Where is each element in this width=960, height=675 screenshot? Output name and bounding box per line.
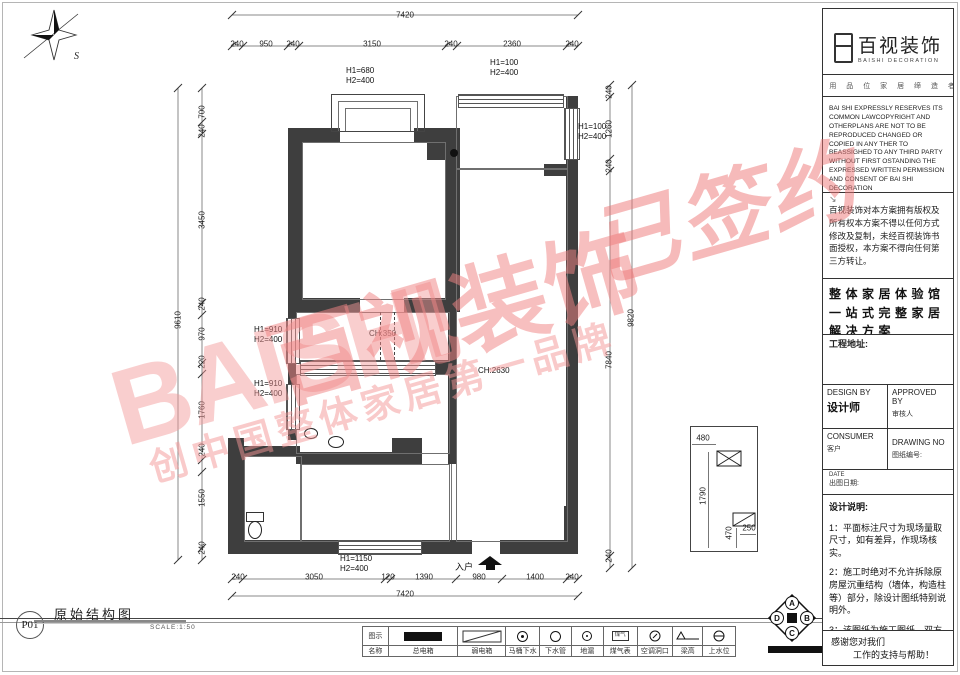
dim-label: 1400 <box>526 573 544 582</box>
design-by-en: DESIGN BY <box>827 388 883 397</box>
dim-label: 240 <box>198 541 207 554</box>
dim-label: 240 <box>605 85 614 98</box>
drawing-no-cn: 图纸编号: <box>892 450 949 460</box>
legend-label: 弱电箱 <box>458 646 505 656</box>
legend-label: 上水位 <box>703 646 735 656</box>
drawing-no-en: DRAWING NO <box>892 438 949 447</box>
wall-segment <box>228 438 244 554</box>
legend-header-bottom: 名称 <box>363 646 388 656</box>
north-compass-icon: S <box>14 6 86 66</box>
window-height-label: H1=100 H2=400 <box>490 58 518 77</box>
abcd-diamond-logo: A B C D <box>766 592 818 644</box>
diamond-letter-c: C <box>789 629 795 638</box>
compass-south-label: S <box>74 51 79 62</box>
detail-dim-line <box>736 528 737 548</box>
legend-symbol-ac-hole-icon <box>649 630 661 642</box>
design-note: 3：该图纸为施工图纸，双方（设计和甲方）签字认可后，方可作为施工依据。 <box>829 624 947 631</box>
legend-header-cell: 图示 名称 <box>363 627 389 656</box>
dim-label: 3150 <box>363 40 381 49</box>
design-note: 1：平面标注尺寸为现场量取尺寸，如有差异，作现场核实。 <box>829 522 947 560</box>
legend-symbol-gas-meter-icon: 煤气 <box>612 631 629 641</box>
window-height-label: H1=100 H2=400 <box>578 122 606 141</box>
arrow-icon: ↘ <box>829 195 947 204</box>
dim-label: 240 <box>231 573 244 582</box>
title-underline <box>34 620 186 622</box>
window-mid-band <box>300 360 436 376</box>
legend-item: 总电箱 <box>389 627 459 656</box>
baishi-logo-icon <box>834 33 853 63</box>
dim-label: 970 <box>198 327 207 340</box>
date-cn: 出图日期: <box>829 478 947 488</box>
window-balcony-top <box>458 94 564 108</box>
floor-drain <box>304 428 318 439</box>
window-left-lower <box>286 384 300 430</box>
legend-label: 空调洞口 <box>638 646 673 656</box>
panel-top-spacer <box>823 9 953 21</box>
dim-label: 1760 <box>198 401 207 419</box>
fold-mark-bar <box>768 646 826 653</box>
legend-label: 马桶下水 <box>506 646 539 656</box>
project-address-label: 工程地址: <box>823 335 953 385</box>
room-outline-bedroom <box>302 142 446 300</box>
legend-item: 上水位 <box>703 627 735 656</box>
detail-dim-label: 480 <box>696 434 709 443</box>
detail-dim-line <box>740 534 756 535</box>
dim-label: 240 <box>198 443 207 456</box>
legend-label: 总电箱 <box>389 646 458 656</box>
copyright-english: BAI SHI EXPRESSLY RESERVES ITS COMMON LA… <box>823 97 953 193</box>
dim-label: 240 <box>230 40 243 49</box>
logo-name-en: BAISHI DECORATION <box>858 58 942 64</box>
bay-window-inner <box>345 108 411 131</box>
dim-label: 9820 <box>627 309 636 327</box>
legend-item: 弱电箱 <box>458 627 506 656</box>
floor-drain <box>328 436 344 448</box>
dim-label: 220 <box>198 355 207 368</box>
dim-label: 7840 <box>605 351 614 369</box>
legend-label: 下水管 <box>540 646 571 656</box>
dim-label: 1550 <box>198 489 207 507</box>
design-by-cn: 设计师 <box>827 399 883 415</box>
wall-line <box>451 464 452 540</box>
legend-item: 梁高 <box>673 627 703 656</box>
drawing-no-cell: DRAWING NO 图纸编号: <box>888 429 953 469</box>
dim-label: 120 <box>381 573 394 582</box>
diamond-letter-d: D <box>774 614 780 623</box>
detail-dim-label: 1790 <box>699 487 708 505</box>
window-bottom <box>338 540 422 555</box>
wall-segment <box>244 446 300 456</box>
legend-table: 图示 名称 总电箱 弱电箱 马桶下水 下水管 地漏 煤气 煤气表 空 <box>362 626 736 657</box>
detail-dim-line <box>708 452 709 548</box>
date-cell: DATE 出图日期: <box>823 469 953 495</box>
thanks-line2: 工作的支持与帮助！ <box>831 648 945 661</box>
room-outline-living <box>456 168 568 542</box>
sheet-code-badge: P01 <box>16 611 44 639</box>
thanks-note: 感谢您对我们 工作的支持与帮助！ <box>823 631 953 665</box>
company-slogan: · 用 品 位 家 居 缔 造 者 <box>823 75 953 97</box>
diamond-letter-a: A <box>789 599 795 608</box>
ceiling-height-label: CH:2630 <box>478 366 510 376</box>
approval-grid: DESIGN BY 设计师 APPROVED BY 审核人 CONSUMER 客… <box>823 385 953 469</box>
legend-symbol-weak-electric-box-icon <box>462 630 502 643</box>
wall-segment <box>434 360 452 374</box>
dim-label: 2360 <box>503 40 521 49</box>
dim-label: 240 <box>605 159 614 172</box>
approved-by-en: APPROVED BY <box>892 388 949 406</box>
legend-item: 下水管 <box>540 627 572 656</box>
detail-dim-label: 250 <box>742 524 755 533</box>
room-outline-mid-lower <box>296 374 450 454</box>
dim-label: 240 <box>565 573 578 582</box>
approved-by-cn: 审核人 <box>892 409 949 419</box>
thanks-line1: 感谢您对我们 <box>831 635 945 648</box>
legend-symbol-drain-pipe-icon <box>550 631 561 642</box>
wall-segment <box>404 298 460 312</box>
design-notes-title: 设计说明: <box>829 501 947 514</box>
wall-segment <box>288 298 360 312</box>
dim-label: 240 <box>286 40 299 49</box>
dim-label: 9610 <box>174 311 183 329</box>
legend-item: 地漏 <box>572 627 604 656</box>
entry-label: 入户 <box>455 562 473 573</box>
dim-label: 980 <box>472 573 485 582</box>
dim-label: 240 <box>198 124 207 137</box>
legend-item: 马桶下水 <box>506 627 540 656</box>
entry-arrow-stem <box>486 565 495 570</box>
diamond-letter-b: B <box>804 614 810 623</box>
legend-item: 煤气 煤气表 <box>604 627 638 656</box>
logo-name-cn: 百视装饰 <box>858 31 942 58</box>
dim-label: 240 <box>198 297 207 310</box>
dim-label: 240 <box>605 549 614 562</box>
legend-symbol-floor-drain-icon <box>582 631 592 641</box>
scale-label: SCALE:1:50 <box>150 624 196 631</box>
company-heading: 整体家居体验馆一站式完整家居解决方案 <box>823 279 953 335</box>
dim-label: 3050 <box>305 573 323 582</box>
legend-item: 空调洞口 <box>638 627 674 656</box>
title-block-panel: 百视装饰 BAISHI DECORATION · 用 品 位 家 居 缔 造 者… <box>822 8 954 666</box>
room-outline-kitchen <box>300 464 450 542</box>
legend-label: 梁高 <box>673 646 702 656</box>
detail-dim-line <box>692 444 716 445</box>
dim-label: 1390 <box>415 573 433 582</box>
window-height-label: H1=910 H2=400 <box>254 379 282 398</box>
legend-symbol-supply-water-icon <box>713 630 725 642</box>
toilet-bowl <box>248 521 262 539</box>
copyright-cn-text: 百视装饰对本方案拥有版权及所有权本方案不得以任何方式修改及复制，未经百视装饰书面… <box>829 205 940 266</box>
dim-label: 7420 <box>396 11 414 20</box>
drawing-sheet: S 7420 240 <box>0 0 960 675</box>
copyright-chinese: ↘ 百视装饰对本方案拥有版权及所有权本方案不得以任何方式修改及复制，未经百视装饰… <box>823 193 953 279</box>
door-pivot-dot <box>450 149 458 157</box>
window-height-label: H1=680 H2=400 <box>346 66 374 85</box>
window-height-label: H1=1150 H2=400 <box>340 554 372 573</box>
design-by-cell: DESIGN BY 设计师 <box>823 385 888 429</box>
wall-segment <box>288 128 302 312</box>
dim-label: 240 <box>565 40 578 49</box>
entry-arrow-icon <box>478 556 502 565</box>
design-notes: 设计说明: 1：平面标注尺寸为现场量取尺寸，如有差异，作现场核实。 2：施工时绝… <box>823 495 953 631</box>
consumer-cell: CONSUMER 客户 <box>823 429 888 469</box>
window-left-upper <box>286 318 300 364</box>
legend-symbol-main-electric-box-icon <box>404 632 442 641</box>
dim-label: 700 <box>198 105 207 118</box>
consumer-cn: 客户 <box>827 444 883 454</box>
dim-label: 240 <box>444 40 457 49</box>
detail-xbox-icon <box>716 450 742 467</box>
consumer-en: CONSUMER <box>827 432 883 441</box>
design-note: 2：施工时绝对不允许拆除原房屋沉重结构（墙体，构造柱等）部分，除设计图纸特别说明… <box>829 566 947 616</box>
detail-dim-label: 470 <box>725 526 734 539</box>
dim-label: 950 <box>259 40 272 49</box>
legend-symbol-beam-height-icon <box>676 631 700 641</box>
legend-label: 煤气表 <box>604 646 637 656</box>
wall-segment <box>228 540 338 554</box>
approved-by-cell: APPROVED BY 审核人 <box>888 385 953 429</box>
window-height-label: H1=910 H2=400 <box>254 325 282 344</box>
legend-symbol-toilet-drain-icon <box>517 631 528 642</box>
wall-segment <box>420 540 472 554</box>
legend-label: 地漏 <box>572 646 603 656</box>
beam-height-label: CH:350 <box>369 329 396 339</box>
legend-header-top: 图示 <box>363 627 388 646</box>
dim-label: 7420 <box>396 590 414 599</box>
dim-label: 3450 <box>198 211 207 229</box>
company-logo: 百视装饰 BAISHI DECORATION <box>823 21 953 75</box>
